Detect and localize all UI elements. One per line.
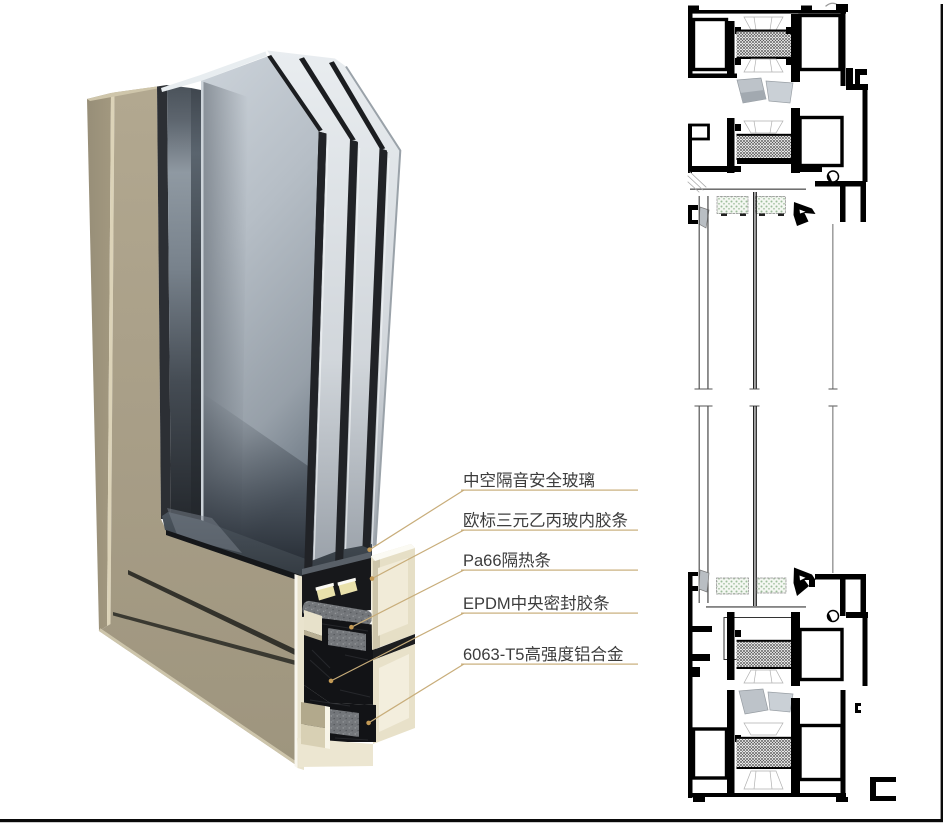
- svg-text:Pa66隔热条: Pa66隔热条: [463, 551, 551, 570]
- svg-text:欧标三元乙丙玻内胶条: 欧标三元乙丙玻内胶条: [463, 511, 628, 530]
- svg-text:6063-T5高强度铝合金: 6063-T5高强度铝合金: [463, 645, 624, 664]
- svg-text:EPDM中央密封胶条: EPDM中央密封胶条: [463, 594, 610, 613]
- svg-text:中空隔音安全玻璃: 中空隔音安全玻璃: [463, 471, 595, 490]
